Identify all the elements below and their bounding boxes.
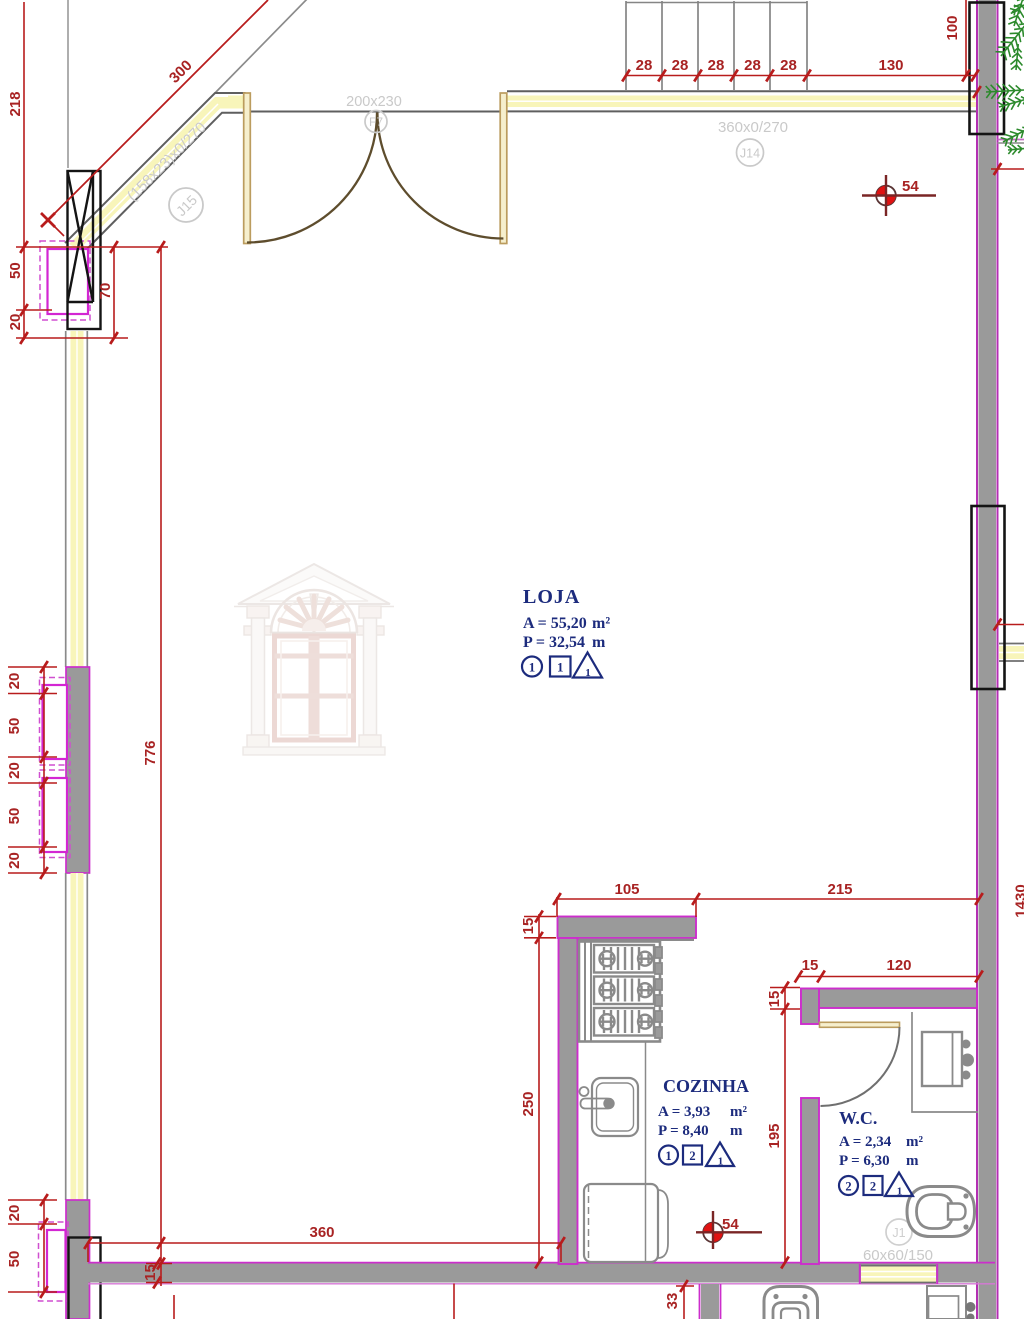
svg-text:20: 20 (6, 673, 23, 690)
svg-text:218: 218 (7, 91, 24, 116)
svg-text:m: m (906, 1153, 919, 1169)
svg-text:15: 15 (766, 991, 783, 1008)
svg-text:A = 2,34: A = 2,34 (839, 1134, 892, 1150)
svg-text:100: 100 (944, 15, 961, 40)
svg-text:54: 54 (902, 178, 919, 195)
svg-text:LOJA: LOJA (523, 586, 580, 608)
svg-text:2: 2 (689, 1149, 695, 1163)
svg-text:m²: m² (906, 1134, 923, 1150)
svg-text:m: m (592, 634, 606, 651)
svg-text:1: 1 (718, 1156, 724, 1168)
svg-text:1: 1 (529, 660, 536, 675)
svg-text:COZINHA: COZINHA (663, 1076, 749, 1096)
svg-text:28: 28 (780, 57, 797, 74)
svg-text:W.C.: W.C. (839, 1108, 877, 1128)
svg-text:P = 6,30: P = 6,30 (839, 1153, 890, 1169)
svg-text:130: 130 (878, 57, 903, 74)
svg-text:776: 776 (142, 740, 159, 765)
svg-text:50: 50 (7, 262, 24, 279)
svg-text:1: 1 (897, 1186, 903, 1198)
svg-text:215: 215 (827, 881, 852, 898)
svg-text:360: 360 (309, 1224, 334, 1241)
svg-text:20: 20 (7, 314, 24, 331)
svg-text:20: 20 (6, 1205, 23, 1222)
svg-text:195: 195 (766, 1123, 783, 1148)
svg-text:50: 50 (6, 808, 23, 825)
svg-text:360x0/270: 360x0/270 (718, 119, 788, 136)
svg-text:28: 28 (672, 57, 689, 74)
svg-text:28: 28 (636, 57, 653, 74)
svg-text:1430: 1430 (1013, 884, 1024, 917)
svg-text:15: 15 (142, 1264, 159, 1281)
svg-text:J14: J14 (740, 147, 760, 161)
svg-text:50: 50 (6, 1251, 23, 1268)
svg-text:m²: m² (592, 615, 610, 632)
svg-text:60x60/150: 60x60/150 (863, 1247, 933, 1264)
svg-text:28: 28 (708, 57, 725, 74)
svg-text:F7: F7 (369, 115, 383, 129)
svg-text:P = 32,54: P = 32,54 (523, 634, 585, 651)
svg-text:20: 20 (6, 762, 23, 779)
svg-text:28: 28 (744, 57, 761, 74)
svg-text:200x230: 200x230 (346, 94, 402, 110)
svg-text:15: 15 (802, 957, 819, 974)
svg-text:120: 120 (886, 957, 911, 974)
svg-text:15: 15 (520, 918, 537, 935)
svg-text:1: 1 (585, 667, 591, 679)
svg-text:A = 55,20: A = 55,20 (523, 615, 587, 632)
svg-text:20: 20 (6, 852, 23, 869)
svg-text:33: 33 (664, 1293, 681, 1310)
svg-text:2: 2 (870, 1180, 876, 1194)
svg-text:1: 1 (557, 660, 564, 675)
svg-text:A = 3,93: A = 3,93 (658, 1104, 710, 1120)
svg-text:2: 2 (845, 1180, 851, 1194)
svg-text:P = 8,40: P = 8,40 (658, 1123, 709, 1139)
svg-text:m²: m² (730, 1104, 747, 1120)
svg-text:54: 54 (722, 1216, 739, 1233)
svg-text:250: 250 (520, 1091, 537, 1116)
svg-text:1: 1 (665, 1149, 671, 1163)
svg-text:70: 70 (97, 283, 114, 300)
svg-text:50: 50 (6, 718, 23, 735)
svg-text:m: m (730, 1123, 743, 1139)
svg-text:105: 105 (614, 881, 639, 898)
svg-text:J1: J1 (892, 1226, 905, 1240)
